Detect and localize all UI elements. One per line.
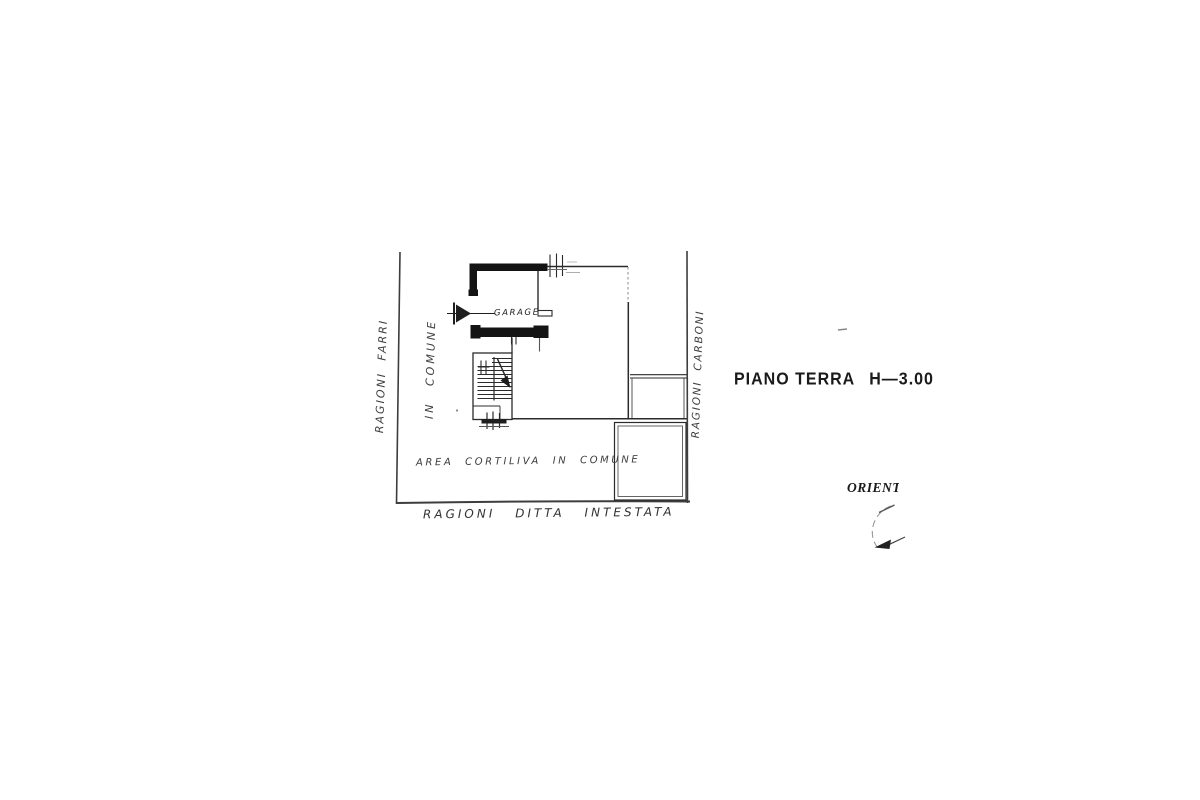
wall-hatch-marks <box>547 254 580 278</box>
terrace-right <box>630 375 687 418</box>
plan-title-text: PIANO TERRA <box>734 371 855 389</box>
label-owner-bottom: RAGIONI DITTA INTESTATA <box>423 504 675 523</box>
staircase <box>473 353 512 430</box>
orientation-symbol <box>872 505 905 549</box>
label-garage-room: GARAGE <box>494 305 540 322</box>
label-courtyard: AREA CORTILIVA IN COMUNE <box>416 452 640 471</box>
garage-entrance-arrow <box>447 303 495 325</box>
plan-title-height: H—3.00 <box>869 371 934 389</box>
label-orientation: ORIENT <box>847 480 899 496</box>
plan-title: PIANO TERRA H—3.00 <box>734 371 934 389</box>
building-thin-lines <box>512 267 687 419</box>
building-walls <box>469 264 549 339</box>
floor-plan-drawing <box>0 0 1200 800</box>
scanned-floor-plan-page: RAGIONI FARRI IN COMUNE RAGIONI CARBONI … <box>0 0 1200 800</box>
